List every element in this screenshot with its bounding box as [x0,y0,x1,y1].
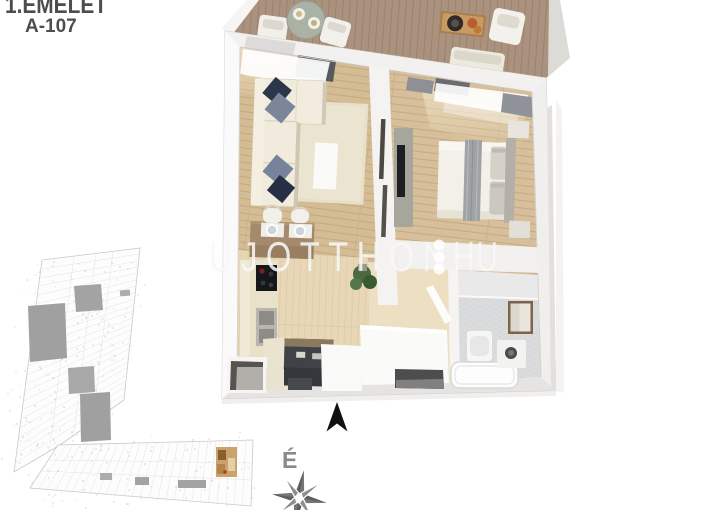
svg-text:A-107: A-107 [25,16,77,37]
svg-text:É: É [282,446,297,473]
svg-text:HU: HU [453,233,500,280]
svg-text:UJOTTHON: UJOTTHON [209,233,455,280]
